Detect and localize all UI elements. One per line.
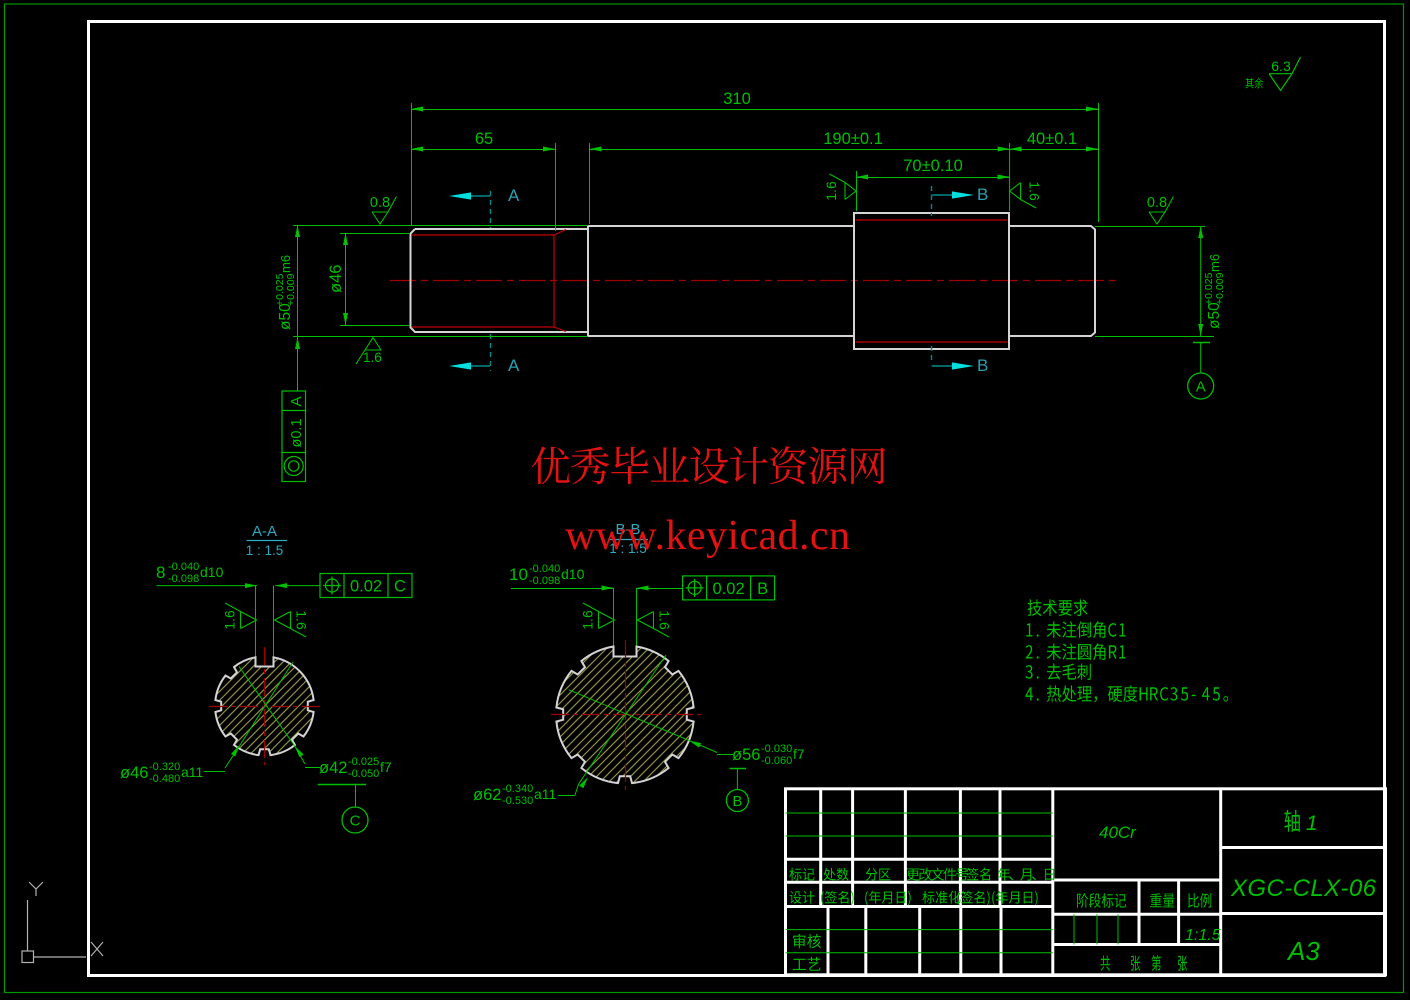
svg-text:-0.060: -0.060 [761, 755, 792, 767]
svg-text:+0.009: +0.009 [1214, 272, 1226, 305]
svg-text:f7: f7 [793, 746, 805, 762]
svg-text:C: C [394, 578, 406, 596]
svg-text:-0.320: -0.320 [149, 761, 180, 773]
svg-text:A: A [508, 356, 520, 375]
svg-text:ø0.1: ø0.1 [289, 418, 305, 447]
svg-text:0.8: 0.8 [1147, 195, 1167, 211]
svg-text:+0.009: +0.009 [285, 273, 297, 306]
svg-text:-0.098: -0.098 [168, 573, 199, 585]
svg-text:ø62: ø62 [473, 786, 501, 804]
svg-text:1.6: 1.6 [363, 350, 382, 365]
svg-text:a11: a11 [534, 786, 557, 802]
svg-text:www.keyicad.cn: www.keyicad.cn [565, 513, 850, 559]
svg-text:-0.050: -0.050 [348, 768, 379, 780]
svg-text:m6: m6 [1207, 254, 1222, 272]
svg-text:190±0.1: 190±0.1 [823, 130, 883, 148]
svg-text:A-A: A-A [252, 523, 277, 540]
svg-text:1.6: 1.6 [823, 181, 839, 201]
svg-text:0.02: 0.02 [713, 580, 745, 598]
svg-text:-0.340: -0.340 [502, 783, 533, 795]
svg-text:10: 10 [509, 565, 528, 584]
svg-text:-0.480: -0.480 [149, 773, 180, 785]
svg-text:6.3: 6.3 [1271, 58, 1291, 74]
svg-text:A: A [508, 186, 520, 205]
svg-text:-0.098: -0.098 [529, 575, 560, 587]
svg-text:40Cr: 40Cr [1099, 823, 1137, 842]
svg-text:-0.040: -0.040 [168, 561, 199, 573]
svg-text:B: B [977, 185, 988, 204]
svg-text:0.8: 0.8 [370, 195, 390, 211]
svg-text:8: 8 [156, 563, 165, 582]
svg-text:ø42: ø42 [319, 759, 347, 777]
svg-text:-0.025: -0.025 [348, 756, 379, 768]
svg-text:-0.530: -0.530 [502, 795, 533, 807]
svg-text:1.6: 1.6 [222, 610, 238, 630]
svg-text:40±0.1: 40±0.1 [1027, 130, 1077, 148]
svg-text:1.6: 1.6 [580, 610, 596, 630]
svg-text:1.6: 1.6 [1027, 181, 1043, 201]
svg-text:B: B [977, 356, 988, 375]
svg-text:B: B [757, 580, 768, 598]
svg-text:m6: m6 [278, 255, 293, 273]
svg-text:XGC-CLX-06: XGC-CLX-06 [1230, 875, 1377, 902]
svg-text:d10: d10 [200, 564, 224, 580]
svg-text:310: 310 [723, 90, 751, 108]
svg-text:1 : 1.5: 1 : 1.5 [246, 543, 284, 558]
svg-text:0.02: 0.02 [350, 578, 382, 596]
svg-text:ø46: ø46 [120, 764, 148, 782]
svg-text:A: A [1196, 379, 1206, 396]
svg-text:ø56: ø56 [732, 746, 760, 764]
svg-text:1.6: 1.6 [657, 610, 673, 630]
svg-text:1:1.5: 1:1.5 [1185, 927, 1221, 944]
svg-text:ø46: ø46 [327, 265, 345, 293]
svg-text:C: C [350, 813, 361, 830]
svg-text:65: 65 [475, 130, 493, 148]
svg-text:f7: f7 [380, 759, 392, 775]
svg-text:B: B [732, 793, 742, 810]
svg-text:a11: a11 [181, 764, 204, 780]
svg-text:1.6: 1.6 [294, 610, 310, 630]
svg-text:A: A [288, 396, 305, 406]
svg-text:1: 1 [1306, 812, 1318, 835]
svg-text:70±0.10: 70±0.10 [903, 157, 963, 175]
svg-text:-0.040: -0.040 [529, 563, 560, 575]
svg-text:-0.030: -0.030 [761, 743, 792, 755]
svg-text:d10: d10 [561, 566, 585, 582]
svg-text:A3: A3 [1286, 936, 1320, 966]
